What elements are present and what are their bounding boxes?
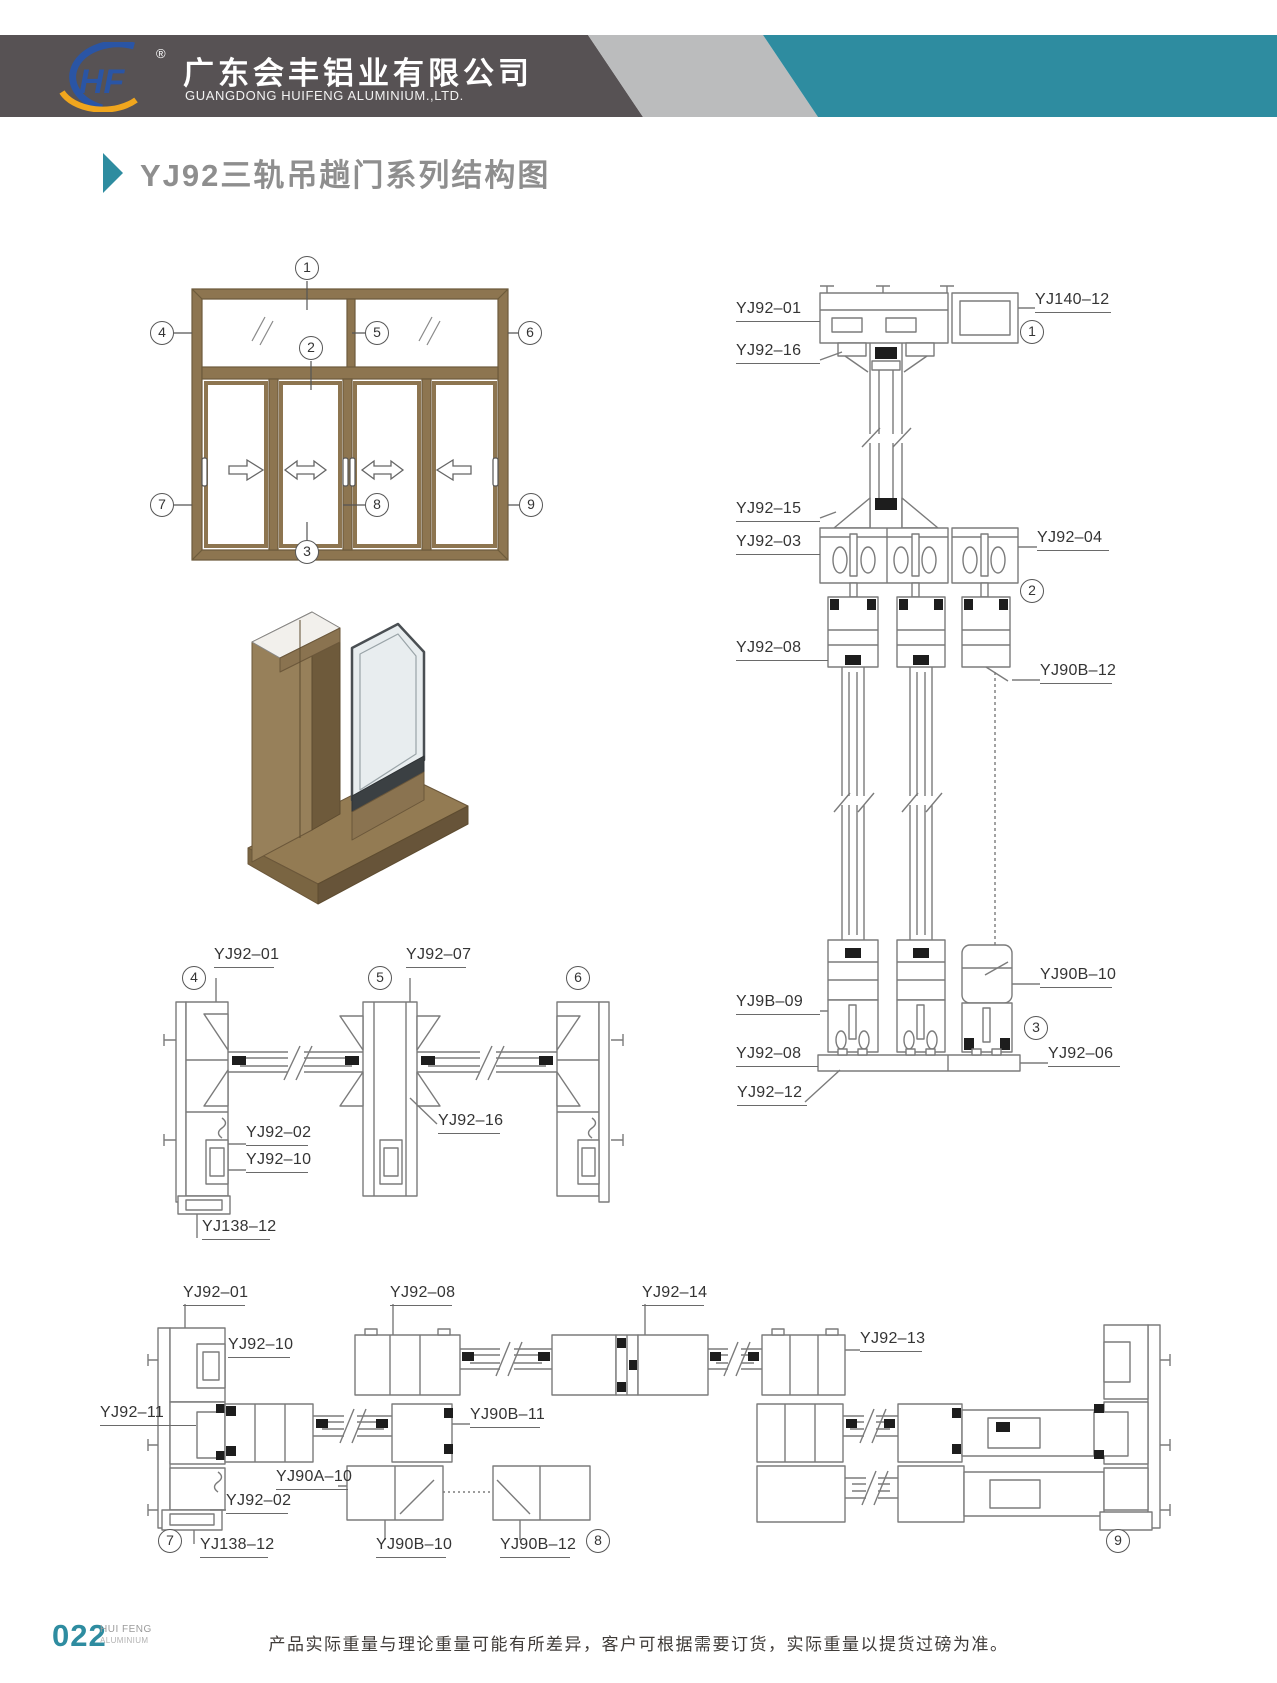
part-label: YJ92–01	[214, 946, 274, 968]
part-label: YJ92–13	[860, 1330, 922, 1352]
part-label: YJ92–01	[736, 300, 820, 322]
bottom-horizontal-section-drawing	[95, 1280, 1185, 1570]
company-logo: HF ®	[46, 42, 181, 112]
part-label: YJ92–02	[226, 1492, 288, 1514]
callout: 6	[566, 966, 590, 990]
callout: 2	[299, 336, 323, 360]
part-label: YJ138–12	[200, 1536, 268, 1558]
part-label: YJ90B–12	[500, 1536, 570, 1558]
callout: 1	[295, 256, 319, 280]
part-label: YJ92–10	[246, 1151, 308, 1173]
part-label: YJ92–14	[642, 1284, 704, 1306]
callout: 3	[1024, 1016, 1048, 1040]
company-name-en: GUANGDONG HUIFENG ALUMINIUM.,LTD.	[185, 88, 464, 103]
part-label: YJ92–03	[736, 533, 820, 555]
callout: 6	[518, 321, 542, 345]
callout: 5	[368, 966, 392, 990]
callout: 1	[1020, 320, 1044, 344]
part-label: YJ92–10	[228, 1336, 290, 1358]
part-label: YJ92–02	[246, 1124, 308, 1146]
callout: 8	[586, 1529, 610, 1553]
part-label: YJ92–12	[737, 1084, 807, 1106]
logo-monogram: HF	[79, 63, 126, 101]
footer-disclaimer: 产品实际重量与理论重量可能有所差异，客户可根据需要订货，实际重量以提货过磅为准。	[0, 1630, 1277, 1655]
part-label: YJ90B–11	[470, 1406, 540, 1428]
part-label: YJ92–04	[1037, 529, 1109, 551]
callout: 9	[519, 493, 543, 517]
part-label: YJ92–08	[736, 1045, 818, 1067]
part-label: YJ90B–10	[376, 1536, 446, 1558]
part-label: YJ140–12	[1035, 291, 1111, 313]
catalog-page: HF ® 广东会丰铝业有限公司 GUANGDONG HUIFENG ALUMIN…	[0, 0, 1277, 1683]
part-label: YJ92–08	[736, 639, 828, 661]
callout: 4	[182, 966, 206, 990]
part-label: YJ92–16	[438, 1112, 500, 1134]
part-label: YJ92–15	[736, 500, 820, 522]
callout: 4	[150, 321, 174, 345]
profile-3d-render	[230, 590, 490, 910]
part-label: YJ90B–10	[1040, 966, 1112, 988]
middle-horizontal-section-drawing	[140, 940, 640, 1250]
callout: 7	[158, 1529, 182, 1553]
header-teal-stripe	[763, 35, 1277, 117]
callout: 8	[365, 493, 389, 517]
part-label: YJ9B–09	[736, 993, 820, 1015]
part-label: YJ90A–10	[276, 1468, 348, 1490]
part-label: YJ92–06	[1048, 1045, 1120, 1067]
title-arrow-icon	[103, 153, 123, 193]
company-name-cn: 广东会丰铝业有限公司	[183, 48, 533, 93]
part-label: YJ92–16	[736, 342, 820, 364]
part-label: YJ92–01	[183, 1284, 245, 1306]
callout: 3	[295, 540, 319, 564]
registered-mark: ®	[156, 46, 166, 61]
callout: 9	[1106, 1529, 1130, 1553]
callout: 7	[150, 493, 174, 517]
part-label: YJ92–11	[100, 1404, 196, 1426]
vertical-section-drawing	[650, 260, 1130, 1120]
callout: 2	[1020, 579, 1044, 603]
part-label: YJ90B–12	[1040, 662, 1112, 684]
callout: 5	[365, 321, 389, 345]
page-title: YJ92三轨吊趟门系列结构图	[140, 150, 550, 195]
door-elevation-drawing	[150, 240, 560, 580]
part-label: YJ92–07	[406, 946, 466, 968]
part-label: YJ92–08	[390, 1284, 452, 1306]
part-label: YJ138–12	[202, 1218, 270, 1240]
